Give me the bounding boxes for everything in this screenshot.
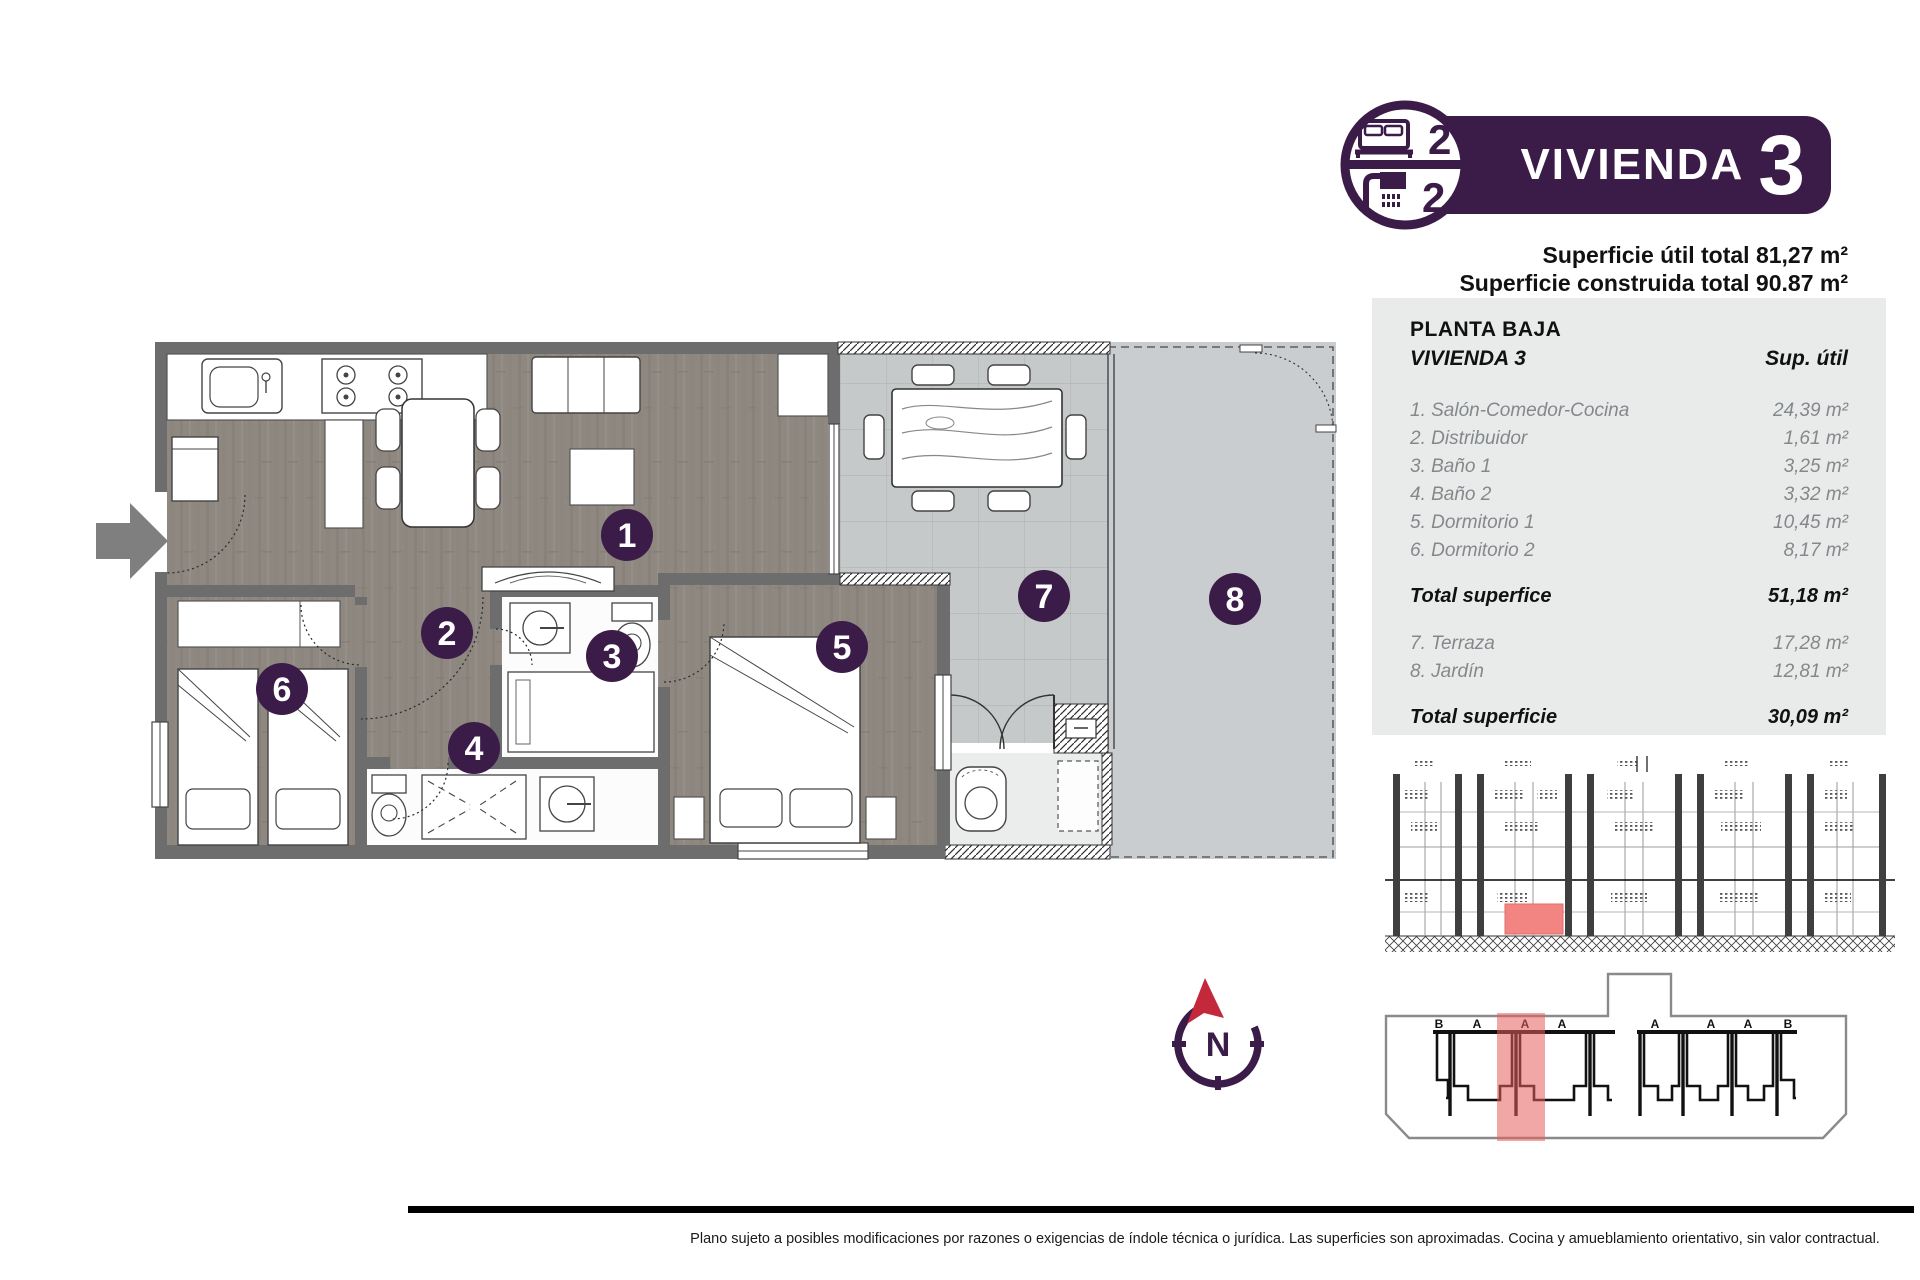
surface-totals: Superficie útil total 81,27 m² Superfici…	[1398, 241, 1848, 297]
unit-letter: A	[1558, 1017, 1567, 1031]
table-row: 3. Baño 13,25 m²	[1410, 453, 1848, 481]
unit-header: VIVIENDA 3 2	[1340, 100, 1860, 232]
terrace-side-wall	[840, 573, 950, 585]
room-number: 5	[833, 629, 852, 667]
room-number: 7	[1035, 578, 1054, 616]
room-area: 3,32 m²	[1784, 481, 1848, 509]
room-area: 17,28 m²	[1773, 630, 1848, 658]
total-outdoor-row: Total superficie 30,09 m²	[1410, 706, 1848, 729]
unit-title: VIVIENDA	[1520, 140, 1744, 190]
tv-unit	[482, 567, 614, 591]
compass-rose: N	[1160, 972, 1276, 1098]
table-row: 1. Salón-Comedor-Cocina24,39 m²	[1410, 397, 1848, 425]
unit-letter: A	[1744, 1017, 1753, 1031]
table-row: 8. Jardín12,81 m²	[1410, 658, 1848, 686]
room-area: 1,61 m²	[1784, 425, 1848, 453]
table-row: 7. Terraza17,28 m²	[1410, 630, 1848, 658]
floor-plan: 1 2 3 4 5 6 7 8	[150, 337, 1340, 867]
room-number: 4	[465, 730, 484, 768]
total-interior-row: Total superfice 51,18 m²	[1410, 585, 1848, 608]
room-number: 2	[438, 615, 457, 653]
building-elevation	[1385, 752, 1895, 958]
unit-letter: B	[1435, 1017, 1444, 1031]
table-col-header: Sup. útil	[1765, 347, 1848, 371]
total-area: 51,18 m²	[1768, 585, 1848, 608]
table-unit-label: VIVIENDA 3	[1410, 347, 1526, 371]
room-number: 1	[618, 517, 637, 555]
room-area: 10,45 m²	[1773, 509, 1848, 537]
bathroom-count: 2	[1422, 174, 1445, 221]
table-header: VIVIENDA 3 Sup. útil	[1410, 347, 1848, 371]
superficie-construida-total: Superficie construida total 90.87 m²	[1398, 269, 1848, 297]
superficie-util-total: Superficie útil total 81,27 m²	[1398, 241, 1848, 269]
outdoor-rows: 7. Terraza17,28 m² 8. Jardín12,81 m²	[1410, 630, 1848, 686]
north-label: N	[1206, 1026, 1231, 1064]
unit-highlight-siteplan	[1497, 1013, 1545, 1141]
room-label: 5. Dormitorio 1	[1410, 509, 1535, 537]
room-label: 7. Terraza	[1410, 630, 1495, 658]
disclaimer-text: Plano sujeto a posibles modificaciones p…	[650, 1231, 1920, 1247]
unit-letter: A	[1651, 1017, 1660, 1031]
unit-letter: A	[1473, 1017, 1482, 1031]
site-plan: B A A A A A A B	[1382, 968, 1852, 1148]
room-label: 3. Baño 1	[1410, 453, 1491, 481]
unit-letter: B	[1784, 1017, 1793, 1031]
room-rows: 1. Salón-Comedor-Cocina24,39 m² 2. Distr…	[1410, 397, 1848, 565]
single-bed	[178, 669, 258, 845]
floor-label: PLANTA BAJA	[1410, 318, 1848, 342]
room-area: 3,25 m²	[1784, 453, 1848, 481]
total-label: Total superfice	[1410, 585, 1552, 608]
room-label: 6. Dormitorio 2	[1410, 537, 1535, 565]
bed-bath-badge: 2 2	[1340, 100, 1470, 230]
table-row: 5. Dormitorio 110,45 m²	[1410, 509, 1848, 537]
room-number: 8	[1226, 581, 1245, 619]
north-needle-icon	[1187, 978, 1224, 1024]
room-label: 4. Baño 2	[1410, 481, 1491, 509]
room-label: 2. Distribuidor	[1410, 425, 1527, 453]
total-label: Total superficie	[1410, 706, 1557, 729]
floorplan-sheet: 1 2 3 4 5 6 7 8 VIVIENDA 3	[0, 0, 1920, 1280]
terrace-top-wall	[838, 342, 1110, 354]
bedroom-count: 2	[1428, 116, 1451, 163]
room-area: 24,39 m²	[1773, 397, 1848, 425]
room-number: 6	[273, 671, 292, 709]
room-label: 8. Jardín	[1410, 658, 1484, 686]
total-area: 30,09 m²	[1768, 706, 1848, 729]
table-row: 6. Dormitorio 28,17 m²	[1410, 537, 1848, 565]
table-row: 4. Baño 23,32 m²	[1410, 481, 1848, 509]
coffee-table	[570, 449, 634, 505]
table-row: 2. Distribuidor1,61 m²	[1410, 425, 1848, 453]
room-area: 12,81 m²	[1773, 658, 1848, 686]
unit-number: 3	[1758, 123, 1805, 207]
room-area: 8,17 m²	[1784, 537, 1848, 565]
unit-highlight-elevation	[1505, 904, 1563, 934]
footer-rule	[408, 1206, 1914, 1213]
unit-letter: A	[1707, 1017, 1716, 1031]
room-number: 3	[603, 638, 622, 676]
room-label: 1. Salón-Comedor-Cocina	[1410, 397, 1629, 425]
area-table: PLANTA BAJA VIVIENDA 3 Sup. útil 1. Saló…	[1372, 298, 1886, 735]
